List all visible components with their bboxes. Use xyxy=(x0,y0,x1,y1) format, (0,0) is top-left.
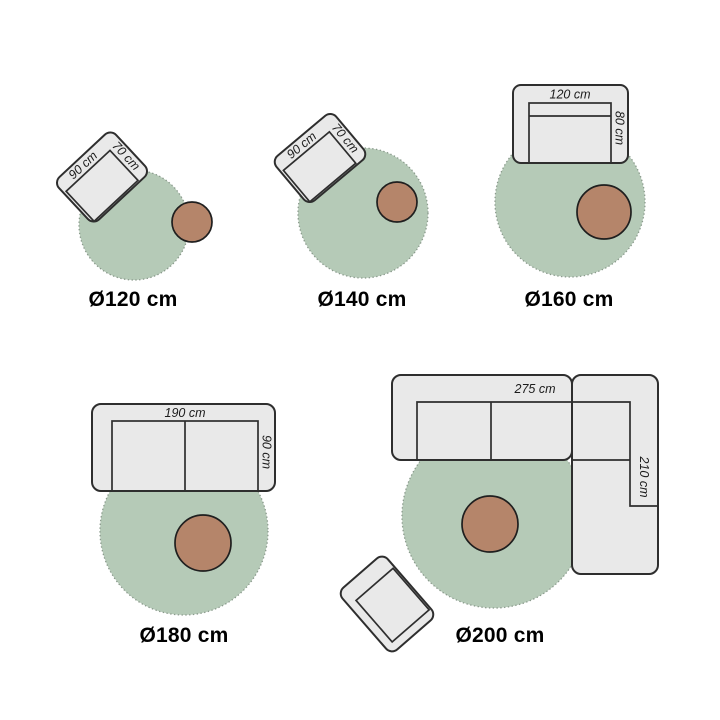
panel-rug-120: 90 cm 70 cm Ø120 cm xyxy=(54,129,212,311)
depth-dim-label: 210 cm xyxy=(637,456,651,498)
rug-size-label: Ø120 cm xyxy=(89,288,178,311)
rug-size-diagram: 90 cm 70 cm Ø120 cm 90 cm 70 cm Ø140 cm … xyxy=(0,0,720,720)
width-dim-label: 275 cm xyxy=(514,382,556,396)
rug-size-label: Ø180 cm xyxy=(140,624,229,647)
two-seat-sofa: 190 cm 90 cm xyxy=(92,404,275,491)
width-dim-label: 120 cm xyxy=(550,88,591,102)
depth-dim-label: 90 cm xyxy=(260,435,274,469)
rug-size-guide: 90 cm 70 cm Ø120 cm 90 cm 70 cm Ø140 cm … xyxy=(0,0,720,720)
panel-rug-160: 120 cm 80 cm Ø160 cm xyxy=(495,85,645,311)
side-table xyxy=(175,515,231,571)
depth-dim-label: 80 cm xyxy=(613,111,627,145)
side-table xyxy=(377,182,417,222)
rug-size-label: Ø160 cm xyxy=(525,288,614,311)
side-table xyxy=(577,185,631,239)
side-table xyxy=(462,496,518,552)
rug-size-label: Ø140 cm xyxy=(318,288,407,311)
panel-rug-140: 90 cm 70 cm Ø140 cm xyxy=(271,111,428,311)
panel-rug-180: 190 cm 90 cm Ø180 cm xyxy=(92,404,275,647)
panel-rug-200: 275 cm 210 cm Ø200 cm xyxy=(337,375,658,655)
loveseat-sofa: 120 cm 80 cm xyxy=(513,85,628,163)
side-table xyxy=(172,202,212,242)
width-dim-label: 190 cm xyxy=(165,406,206,420)
rug-size-label: Ø200 cm xyxy=(456,624,545,647)
